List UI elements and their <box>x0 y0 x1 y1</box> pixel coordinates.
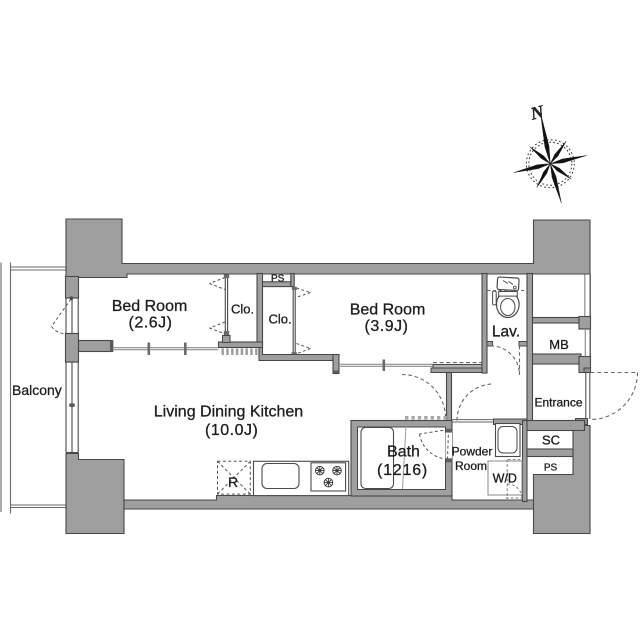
svg-text:(3.9J): (3.9J) <box>365 318 409 335</box>
svg-text:Bath: Bath <box>387 444 420 461</box>
svg-text:Entrance: Entrance <box>534 395 582 409</box>
svg-text:R: R <box>228 474 238 490</box>
svg-text:Clo.: Clo. <box>268 312 291 327</box>
svg-text:PS: PS <box>271 274 285 285</box>
svg-text:(1216): (1216) <box>377 462 428 479</box>
svg-text:PS: PS <box>544 462 558 473</box>
svg-text:(10.0J): (10.0J) <box>205 422 258 439</box>
svg-text:(2.6J): (2.6J) <box>129 315 173 332</box>
svg-text:Clo.: Clo. <box>231 302 254 317</box>
svg-text:Room: Room <box>455 459 487 473</box>
svg-text:Living Dining Kitchen: Living Dining Kitchen <box>154 403 303 420</box>
svg-text:Balcony: Balcony <box>12 382 62 398</box>
svg-text:Powder: Powder <box>452 445 493 459</box>
svg-text:W/D: W/D <box>493 472 517 486</box>
svg-text:Bed Room: Bed Room <box>350 301 426 318</box>
svg-text:SC: SC <box>542 433 560 448</box>
svg-text:MB: MB <box>549 337 569 352</box>
svg-text:Lav.: Lav. <box>492 323 520 340</box>
svg-text:Bed Room: Bed Room <box>112 298 188 315</box>
